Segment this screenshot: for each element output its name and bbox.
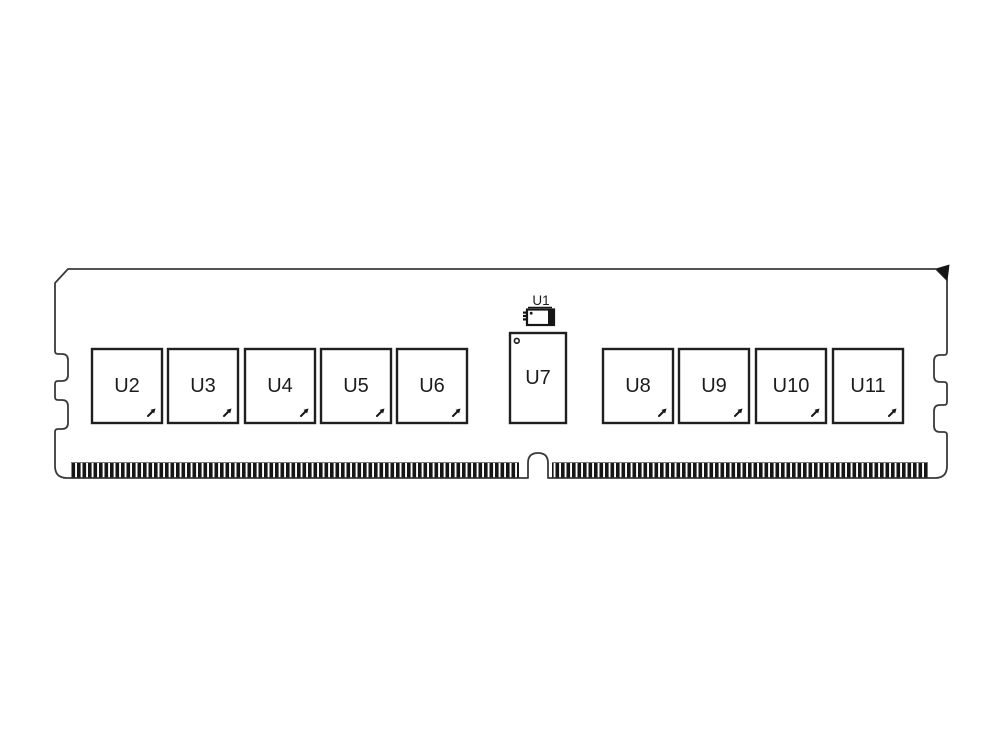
edge-connector-fingers-left	[71, 463, 519, 478]
chip-label: U9	[701, 375, 727, 397]
chip-u9: U9	[679, 349, 749, 423]
chip-u4: U4	[245, 349, 315, 423]
u1-pin	[523, 315, 527, 317]
memory-module-diagram: U1 U2 U3 U4 U5 U6 U7	[0, 0, 1000, 750]
chip-label: U6	[419, 375, 445, 397]
chip-u3: U3	[168, 349, 238, 423]
chip-u5: U5	[321, 349, 391, 423]
chip-label: U10	[773, 375, 810, 397]
chip-label: U7	[525, 367, 551, 389]
diagram-canvas: U1 U2 U3 U4 U5 U6 U7	[0, 0, 1000, 750]
chip-label: U11	[850, 375, 885, 397]
u1-pin	[523, 318, 527, 320]
chip-u7: U7	[510, 333, 566, 423]
chip-u10: U10	[756, 349, 826, 423]
chip-u6: U6	[397, 349, 467, 423]
u1-pin1-dot-icon	[530, 312, 533, 315]
u1-label: U1	[532, 293, 549, 308]
chip-u11: U11	[833, 349, 903, 423]
chip-label: U2	[114, 375, 140, 397]
u1-pin	[523, 312, 527, 314]
chip-u2: U2	[92, 349, 162, 423]
u1-polarity-band	[548, 310, 554, 325]
chip-label: U5	[343, 375, 369, 397]
chip-u8: U8	[603, 349, 673, 423]
chip-label: U8	[625, 375, 651, 397]
chip-label: U3	[190, 375, 216, 397]
edge-connector-fingers-right	[552, 463, 928, 478]
chip-label: U4	[267, 375, 293, 397]
